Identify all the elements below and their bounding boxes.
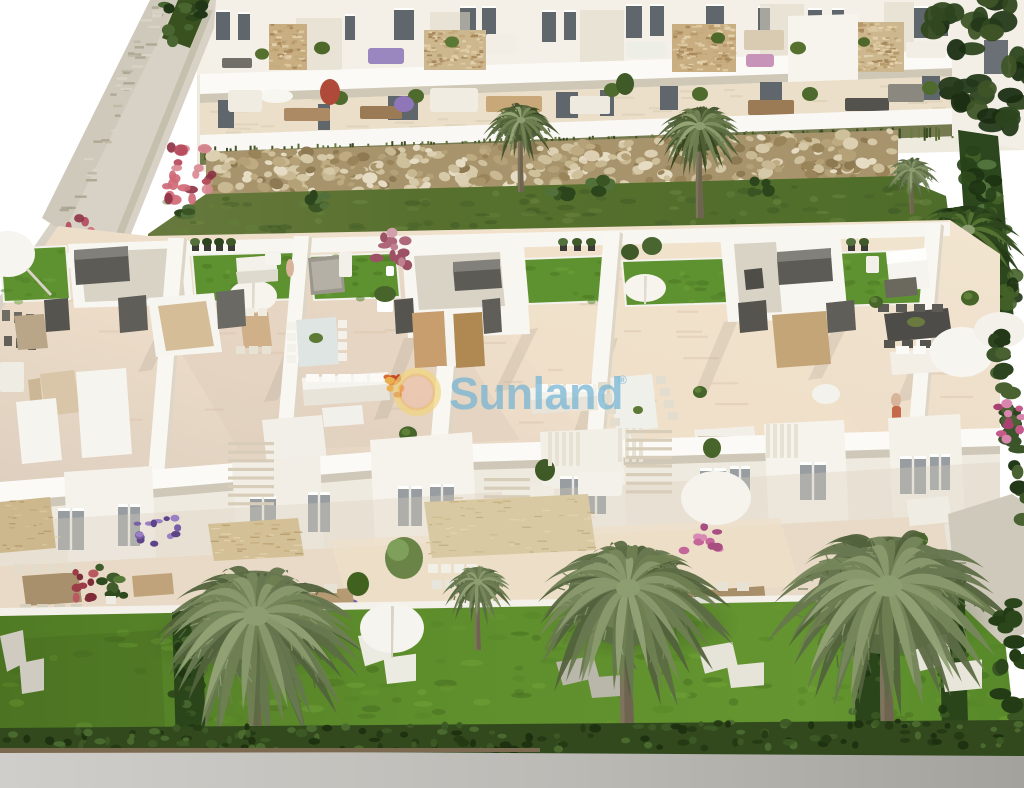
svg-text:®: ® — [618, 373, 627, 387]
svg-text:Sunland: Sunland — [449, 368, 623, 419]
